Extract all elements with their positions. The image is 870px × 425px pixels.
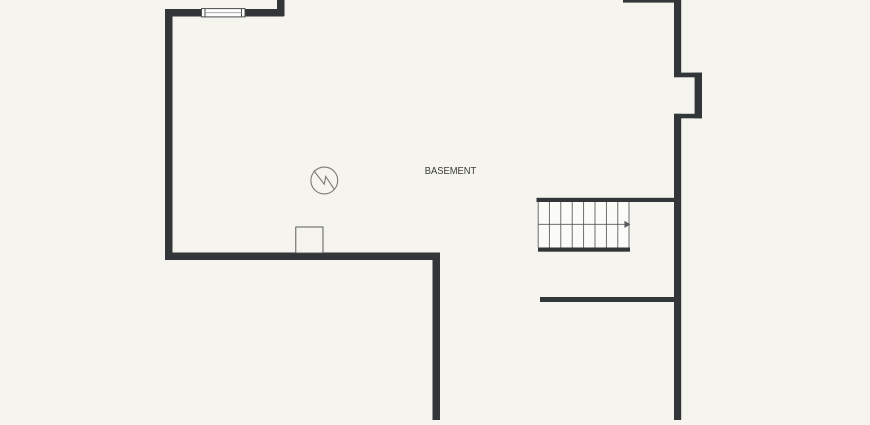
svg-text:BASEMENT: BASEMENT — [425, 166, 477, 177]
